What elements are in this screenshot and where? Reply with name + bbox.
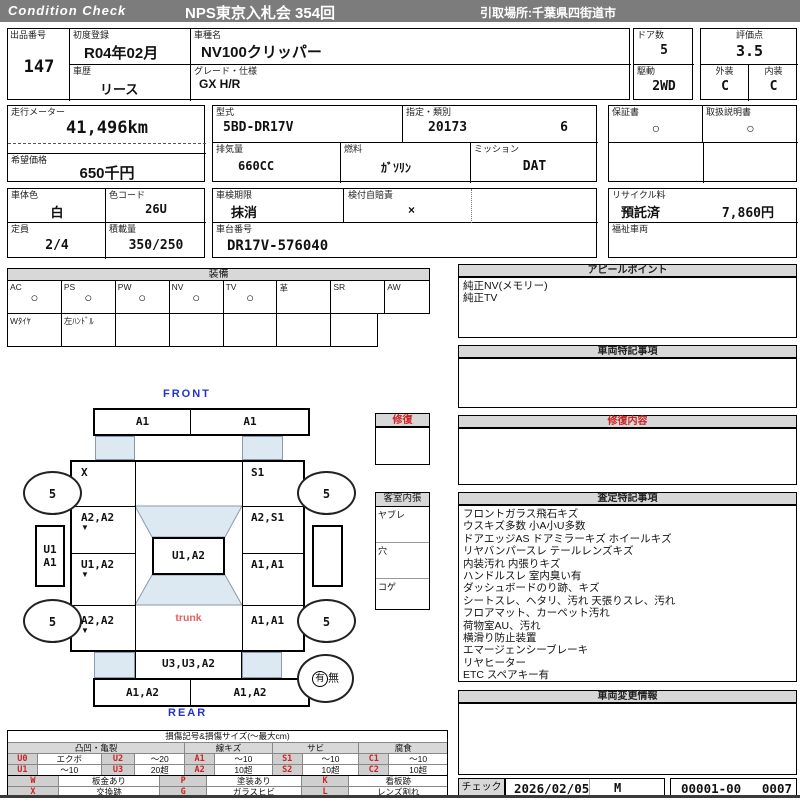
front-label: FRONT [163,388,211,400]
price-value: 650千円 [8,162,206,183]
body-line [72,506,135,507]
body-line [72,605,135,606]
displacement-cell: 排気量 660CC [213,143,341,183]
equipment-cell-tv: TV○ [224,281,278,313]
legend-group: 腐食 [359,743,447,754]
legend-title: 損傷記号&損傷サイズ(〜最大cm) [8,731,447,743]
legend-code: A2 [185,765,215,775]
appeal-line: 純正NV(メモリー) [463,280,796,292]
legend-value: 10超 [303,765,360,775]
marks-row: W 板金あり P 塗装あり K 看板跡 [8,776,447,787]
model-code-label: 型式 [216,107,234,117]
legend-code: K [302,776,350,787]
odometer-cell: 走行メーター 41,496km [8,106,206,144]
body-color-value: 白 [8,202,106,221]
spare-tire-badge: 有無 [297,654,354,703]
insurance-mark: × [408,203,415,217]
equipment-cell-aw: AW [385,281,429,313]
insurance-label: 検付自賠責 [348,190,393,200]
appeal-line: 純正TV [463,292,796,304]
score-label: 評価点 [701,30,798,40]
score-cell: 評価点 3.5 [701,29,798,65]
trunk-label: trunk [135,612,242,624]
color-code-cell: 色コード 26U [106,189,206,223]
legend-value: 10超 [389,765,447,775]
load-cell: 積載量 350/250 [106,223,206,259]
doors-value: 5 [634,43,694,58]
drive-value: 2WD [634,79,694,94]
legend-code: S1 [273,754,303,765]
appeal-body: 純正NV(メモリー) 純正TV [458,277,797,338]
equipment-label: SR [333,282,345,292]
inspection-vin-box: 車検期限 抹消 検付自賠責 × 車台番号 DR17V-576040 [212,188,597,258]
legend-value: 〜10 [38,765,102,775]
capacity-label: 定員 [11,224,29,234]
auction-title: NPS東京入札会 354回 [185,2,335,23]
inspection-value: 抹消 [231,202,257,221]
legend-value: 10超 [215,765,273,775]
assessment-line: ダッシュボードのり跡、キズ [463,582,796,594]
equipment-mark: ○ [170,291,223,305]
vehicle-id-box: 出品番号 147 初度登録 R04年02月 車歴 リース 車種名 NV100クリ… [7,28,630,100]
warranty-label: 保証書 [612,107,639,117]
assessment-line: 横滑り防止装置 [463,632,796,644]
wheel-front-right: 5 [297,471,356,515]
legend-code: S2 [273,765,303,775]
mission-label: ミッション [474,144,519,154]
recycle-fee: 7,860円 [722,202,774,221]
check-date: 2026/02/05 [514,781,589,796]
legend-group: 凸凹・亀裂 [8,743,185,754]
color-code-label: 色コード [109,190,145,200]
assessment-line: リヤヒーター [463,657,796,669]
grade-cell: グレード・仕様 GX H/R [191,65,631,101]
tread-depth: 5 [323,487,330,501]
drive-label: 駆動 [637,66,655,76]
welfare-label: 福祉車両 [612,224,648,234]
side-left-code-top: U1 [37,527,63,556]
manual-cell: 取扱説明書 ○ [703,106,798,143]
assessment-line: エマージェンシーブレーキ [463,644,796,656]
roof-panel: U1,A2 [152,537,225,575]
legend-value: 〜20 [135,754,185,765]
rear-pillar-left [94,652,135,678]
recycle-cell: リサイクル料 預託済 7,860円 [609,189,798,223]
legend-code: C1 [359,754,389,765]
lot-number: 147 [8,57,70,77]
rear-window-shape [135,575,242,605]
interior-label: 内装 [749,66,798,76]
body-line-right [242,462,243,650]
displacement-value: 660CC [238,159,274,173]
legend-size-row: U1 〜10 U3 20超 A2 10超 S2 10超 C2 10超 [8,765,447,775]
assessment-line: シートスレ、ヘタリ、汚れ 天張りスレ、汚れ [463,595,796,607]
legend-code: U1 [8,765,38,775]
quarter-right-code: A1,A1 [251,614,284,627]
load-value: 350/250 [106,238,206,253]
damage-diagram: FRONT A1 A1 X S1 A2,A2 ▼ [0,385,460,730]
legend-size-row: U0 エクボ U2 〜20 A1 〜10 S1 〜10 C1 〜10 [8,754,447,765]
top-header-bar: Condition Check NPS東京入札会 354回 引取場所:千葉県四街… [0,0,800,22]
body-color-label: 車体色 [11,190,38,200]
grade-label: グレード・仕様 [194,66,257,76]
wheel-rear-left: 5 [23,599,82,643]
assessment-line: ウスキズ多数 小A小U多数 [463,520,796,532]
type-number: 20173 [428,120,467,135]
legend-code: P [160,776,207,787]
interior-value: C [749,79,798,94]
legend-code: C2 [359,765,389,775]
equipment-cell-pw: PW○ [116,281,170,313]
history-cell: 車歴 リース [70,65,191,101]
vin-cell: 車台番号 DR17V-576040 [213,223,598,259]
brand-logo: Condition Check [8,3,126,18]
equipment-cell-leather: 革 [277,281,331,313]
documents-box: 保証書 ○ 取扱説明書 ○ [608,105,797,182]
panel-mid-right-code: A1,A1 [251,558,284,571]
model-code-value: 5BD-DR17V [223,120,293,135]
assessment-line: 荷物室AU、汚れ [463,620,796,632]
equipment-cell-nv: NV○ [170,281,224,313]
model-cell: 車種名 NV100クリッパー [191,29,631,65]
change-info-body [458,703,797,775]
exterior-cell: 外装 C [701,65,749,101]
equipment-extra-cell [277,314,331,346]
change-info-header: 車両変更情報 [458,690,797,703]
damage-legend-table: 損傷記号&損傷サイズ(〜最大cm) 凸凹・亀裂 線キズ サビ 腐食 U0 エクボ… [7,730,448,776]
equipment-label: 革 [279,282,288,294]
body-color-cell: 車体色 白 [8,189,106,223]
doors-cell: ドア数 5 [634,29,694,65]
vehicle-notes-body [458,358,797,408]
drive-cell: 駆動 2WD [634,65,694,101]
rear-bumper-left-code: A1,A2 [95,686,190,699]
vin-value: DR17V-576040 [227,238,328,254]
odometer-label: 走行メーター [11,107,65,117]
front-bumper-left-code: A1 [95,415,190,428]
price-cell: 希望価格 650千円 [8,154,206,183]
displacement-label: 排気量 [216,144,243,154]
legend-group: サビ [273,743,360,754]
legend-value: 20超 [135,765,185,775]
fender-right-code: S1 [251,466,264,479]
inspection-label: 車検期限 [216,190,252,200]
side-left-code-bottom: A1 [37,556,63,569]
check-count: 0007 [762,781,792,796]
side-box-right [312,525,343,587]
bottom-rule [0,795,800,798]
tread-depth: 5 [49,487,56,501]
type-class-label: 指定・類別 [406,107,451,117]
check-mark: M [614,781,621,795]
legend-value: 〜10 [389,754,447,765]
inspection-cell: 車検期限 抹消 [213,189,344,223]
roof-code: U1,A2 [172,549,205,562]
equipment-mark: ○ [62,291,115,305]
model-value: NV100クリッパー [201,41,322,62]
legend-value: エクボ [38,754,102,765]
assessment-line: 内装汚れ 内張りキズ [463,558,796,570]
exterior-label: 外装 [701,66,748,76]
grade-value: GX H/R [199,77,240,91]
body-line [242,605,303,606]
equipment-cell-sr: SR [331,281,385,313]
recycle-welfare-box: リサイクル料 預託済 7,860円 福祉車両 [608,188,797,258]
check-number: 00001-00 [681,781,741,796]
assessment-line: フロアマット、カーペット汚れ [463,607,796,619]
panel-mark-icon: ▼ [81,523,89,532]
car-body: X S1 A2,A2 ▼ A2,S1 U1,A2 ▼ A1,A1 A2,A2 ▼… [70,460,305,652]
equipment-extra-cell [224,314,278,346]
assessment-line: ドアエッジAS ドアミラーキズ ホイールキズ [463,533,796,545]
assessment-line: リヤバンパースレ テールレンズキズ [463,545,796,557]
manual-label: 取扱説明書 [706,107,751,117]
legend-code: U2 [102,754,136,765]
panel-mark-icon: ▼ [81,570,89,579]
rear-bumper: A1,A2 A1,A2 [93,678,310,707]
equipment-extra-cell [170,314,224,346]
body-line [242,506,303,507]
warranty-cell: 保証書 ○ [609,106,703,143]
color-code-value: 26U [106,202,206,216]
type-class-cell: 指定・類別 20173 6 [403,106,598,143]
wheel-rear-right: 5 [297,599,356,643]
exterior-value: C [701,79,749,94]
legend-group-row: 凸凹・亀裂 線キズ サビ 腐食 [8,743,447,754]
equipment-extra-label: 左ﾊﾝﾄﾞﾙ [64,315,94,327]
vehicle-notes-header: 車両特記事項 [458,345,797,358]
equipment-title: 装備 [7,268,430,281]
assessment-line: ETC スペアキー有 [463,669,796,681]
insurance-cell: 検付自賠責 × [344,189,598,223]
spare-yes-circled: 有 [312,671,328,687]
legend-code: W [8,776,59,787]
model-code-cell: 型式 5BD-DR17V [213,106,403,143]
recycle-label: リサイクル料 [612,190,666,200]
assessment-body: フロントガラス飛石キズ ウスキズ多数 小A小U多数 ドアエッジAS ドアミラーキ… [458,505,797,682]
mission-cell: ミッション DAT [471,143,598,183]
repair-content-body [458,428,797,485]
equipment-label: AW [387,282,400,292]
welfare-cell: 福祉車両 [609,223,798,259]
equipment-row-main: AC○ PS○ PW○ NV○ TV○ 革 SR AW [7,281,430,314]
panel-mark-icon: ▼ [81,626,89,635]
tread-depth: 5 [49,615,56,629]
tread-depth: 5 [323,615,330,629]
legend-code: U0 [8,754,38,765]
class-number: 6 [560,120,568,135]
manual-mark: ○ [703,120,798,136]
legend-value: 塗装あり [207,776,302,787]
spare-no: 無 [328,672,339,684]
first-reg-value: R04年02月 [84,42,158,63]
legend-value: 看板跡 [349,776,447,787]
doors-label: ドア数 [637,30,664,40]
equipment-extra-label: Wﾀｲﾔ [10,315,31,327]
mission-value: DAT [471,159,598,174]
equipment-row-extra: Wﾀｲﾔ 左ﾊﾝﾄﾞﾙ [7,314,378,347]
lot-label: 出品番号 [10,30,46,40]
rear-hatch: U3,U3,A2 [135,652,242,678]
fuel-value: ｶﾞｿﾘﾝ [381,159,411,176]
insurance-divider [471,189,472,223]
rear-bumper-right-code: A1,A2 [191,686,309,699]
rear-label: REAR [168,707,207,719]
body-line [72,553,135,554]
equipment-mark: ○ [8,291,61,305]
score-value: 3.5 [701,42,798,60]
odometer-spacer [8,144,206,154]
color-capacity-box: 車体色 白 色コード 26U 定員 2/4 積載量 350/250 [7,188,205,258]
evaluation-box: 評価点 3.5 外装 C 内装 C [700,28,797,100]
capacity-cell: 定員 2/4 [8,223,106,259]
fuel-label: 燃料 [344,144,362,154]
equipment-mark: ○ [116,291,169,305]
legend-value: 〜10 [303,754,360,765]
front-pillar-right [242,436,283,460]
documents-divider [703,143,704,183]
equipment-extra-cell [331,314,377,346]
wheel-front-left: 5 [23,471,82,515]
history-value: リース [100,79,138,98]
equipment-extra-cell: Wﾀｲﾔ [8,314,62,346]
front-pillar-left [95,436,135,460]
equipment-table: 装備 AC○ PS○ PW○ NV○ TV○ 革 SR AW Wﾀｲﾔ 左ﾊﾝﾄ… [7,268,430,347]
side-box-left: U1 A1 [35,525,65,587]
pickup-location: 引取場所:千葉県四街道市 [480,4,616,21]
legend-group: 線キズ [185,743,273,754]
first-reg-cell: 初度登録 R04年02月 [70,29,191,65]
rear-pillar-right [242,652,282,678]
repair-content-header: 修復内容 [458,415,797,428]
fuel-cell: 燃料 ｶﾞｿﾘﾝ [341,143,471,183]
model-label: 車種名 [194,30,221,40]
equipment-cell-ps: PS○ [62,281,116,313]
assessment-header: 査定特記事項 [458,492,797,505]
front-bumper: A1 A1 [93,408,310,436]
equipment-mark: ○ [224,291,277,305]
legend-code: A1 [185,754,215,765]
check-divider [589,779,590,796]
engine-box: 型式 5BD-DR17V 指定・類別 20173 6 排気量 660CC 燃料 … [212,105,597,182]
doors-drive-box: ドア数 5 駆動 2WD [633,28,693,100]
vin-label: 車台番号 [216,224,252,234]
assessment-line: ハンドルスレ 室内臭い有 [463,570,796,582]
appeal-header: アピールポイント [458,264,797,277]
lot-cell: 出品番号 147 [8,29,70,101]
odometer-value: 41,496km [8,118,206,138]
odometer-price-box: 走行メーター 41,496km 希望価格 650千円 [7,105,205,182]
front-bumper-right-code: A1 [191,415,309,428]
equipment-extra-cell [116,314,170,346]
legend-value: 〜10 [215,754,273,765]
windshield-shape [135,506,242,537]
load-label: 積載量 [109,224,136,234]
rear-hatch-code: U3,U3,A2 [162,657,215,670]
capacity-value: 2/4 [8,238,106,253]
assessment-line: フロントガラス飛石キズ [463,508,796,520]
recycle-status: 預託済 [621,202,660,221]
warranty-mark: ○ [609,120,703,136]
equipment-extra-cell: 左ﾊﾝﾄﾞﾙ [62,314,116,346]
history-label: 車歴 [73,66,91,76]
interior-cell: 内装 C [749,65,798,101]
condition-check-sheet: Condition Check NPS東京入札会 354回 引取場所:千葉県四街… [0,0,800,800]
fender-left-code: X [81,466,88,479]
legend-code: U3 [102,765,136,775]
door-front-right-code: A2,S1 [251,511,284,524]
first-reg-label: 初度登録 [73,30,109,40]
equipment-cell-ac: AC○ [8,281,62,313]
legend-value: 板金あり [59,776,161,787]
body-line [242,553,303,554]
